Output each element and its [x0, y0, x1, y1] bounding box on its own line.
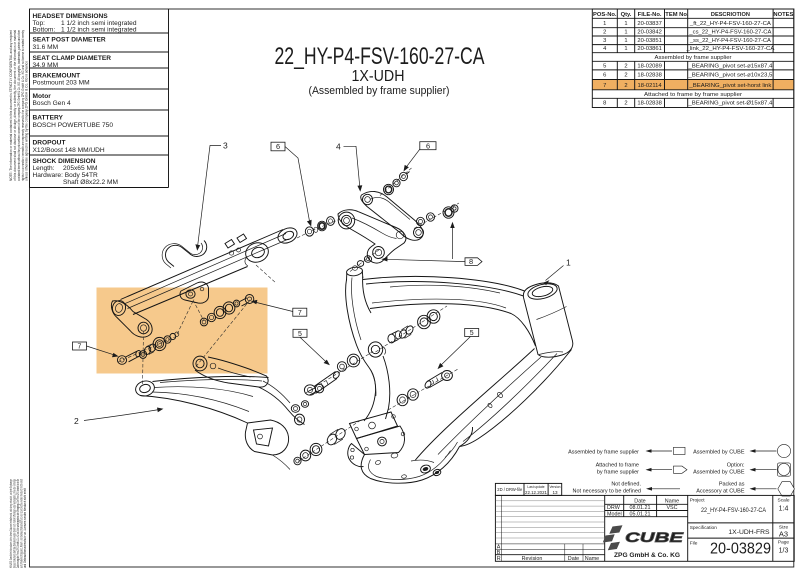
svg-text:Date: Date [568, 556, 579, 562]
svg-text:20-03837: 20-03837 [637, 21, 662, 27]
svg-text:Assembled by frame supplier: Assembled by frame supplier [568, 449, 639, 455]
svg-text:1/3: 1/3 [779, 548, 789, 555]
svg-text:1: 1 [566, 258, 571, 268]
svg-text:BRAKEMOUNT: BRAKEMOUNT [33, 73, 81, 80]
svg-text:4: 4 [336, 142, 341, 152]
svg-text:Name: Name [665, 498, 679, 504]
svg-text:1: 1 [624, 38, 627, 44]
svg-text:20-03851: 20-03851 [637, 38, 662, 44]
svg-text:1X-UDH-FRS: 1X-UDH-FRS [728, 529, 770, 536]
svg-text:6: 6 [603, 73, 606, 79]
svg-text:6: 6 [426, 141, 430, 150]
svg-text:R: R [497, 556, 501, 562]
svg-text:2D / DRW-file: 2D / DRW-file [497, 487, 523, 492]
svg-text:_link_22_HY-P4-FSV-160-27-CA: _link_22_HY-P4-FSV-160-27-CA [685, 46, 774, 52]
svg-text:05.01.21: 05.01.21 [630, 512, 651, 518]
svg-text:5: 5 [298, 331, 302, 338]
svg-text:Shaft Ø8x22.2 MM: Shaft Ø8x22.2 MM [63, 179, 118, 186]
svg-text:by frame supplier: by frame supplier [597, 469, 639, 475]
svg-text:_ft_22_HY-P4-FSV-160-27-CA: _ft_22_HY-P4-FSV-160-27-CA [689, 21, 771, 27]
svg-text:BOSCH POWERTUBE 750: BOSCH POWERTUBE 750 [33, 122, 114, 129]
svg-text:1: 1 [603, 21, 606, 27]
svg-text:HEADSET DIMENSIONS: HEADSET DIMENSIONS [33, 13, 109, 20]
svg-text:Assembled by frame supplier: Assembled by frame supplier [655, 55, 732, 61]
svg-text:8: 8 [469, 257, 473, 266]
svg-text:Bosch Gen 4: Bosch Gen 4 [33, 100, 71, 107]
svg-text:3: 3 [223, 141, 228, 151]
svg-text:20-03842: 20-03842 [637, 30, 662, 36]
svg-text:5: 5 [470, 330, 474, 337]
svg-text:7: 7 [298, 310, 302, 317]
svg-text:_cs_22_HY-P4-FSV-160-27-CA: _cs_22_HY-P4-FSV-160-27-CA [688, 30, 771, 36]
svg-text:Option:: Option: [727, 462, 745, 468]
svg-text:Attached to frame: Attached to frame [596, 462, 639, 468]
svg-text:SEAT CLAMP DIAMETER: SEAT CLAMP DIAMETER [33, 55, 112, 62]
svg-text:_BEARING_pivot set-horst link: _BEARING_pivot set-horst link [688, 83, 771, 89]
svg-text:1:4: 1:4 [779, 506, 789, 513]
svg-text:2: 2 [624, 73, 627, 79]
svg-text:_BEARING_pivot set-ø10x23,5: _BEARING_pivot set-ø10x23,5 [687, 73, 772, 79]
svg-text:31.6 MM: 31.6 MM [33, 44, 59, 51]
svg-text:1: 1 [624, 21, 627, 27]
svg-text:3: 3 [603, 38, 606, 44]
svg-text:und Gebrauchsmusterschutz vor.: und Gebrauchsmusterschutz vor. Lizenzen … [23, 488, 27, 568]
svg-text:Not defined.: Not defined. [611, 481, 641, 487]
svg-text:22.12.2021: 22.12.2021 [525, 490, 547, 495]
svg-text:ITEM No.: ITEM No. [664, 12, 689, 18]
svg-text:18-02838: 18-02838 [637, 101, 662, 107]
svg-text:18-02089: 18-02089 [637, 64, 662, 70]
svg-text:A3: A3 [779, 530, 788, 539]
svg-text:unless otherwise agreed in wri: unless otherwise agreed in writing by th… [25, 61, 29, 181]
svg-text:20-03861: 20-03861 [637, 46, 662, 52]
svg-text:_ss_22_HY-P4-FSV-160-27-CA: _ss_22_HY-P4-FSV-160-27-CA [689, 38, 771, 44]
svg-text:_BEARING_pivot set-ø15x87.4: _BEARING_pivot set-ø15x87.4 [687, 64, 773, 70]
svg-text:1: 1 [624, 30, 627, 36]
svg-text:Attached to frame by frame sup: Attached to frame by frame supplier [644, 92, 742, 98]
svg-text:Hardware: Body 54TR: Hardware: Body 54TR [33, 172, 98, 179]
svg-text:1: 1 [624, 46, 627, 52]
svg-text:BATTERY: BATTERY [33, 115, 64, 122]
svg-text:Version: Version [550, 485, 561, 489]
svg-text:1X-UDH: 1X-UDH [352, 68, 405, 85]
svg-text:18-02114: 18-02114 [638, 83, 663, 89]
svg-text:2: 2 [624, 83, 627, 89]
svg-text:6: 6 [276, 142, 280, 151]
svg-text:08.01.21: 08.01.21 [630, 505, 651, 511]
svg-text:18-02838: 18-02838 [637, 73, 662, 79]
svg-text:2: 2 [74, 416, 79, 426]
svg-text:SEAT POST DIAMETER: SEAT POST DIAMETER [33, 37, 106, 44]
svg-text:Specification: Specification [690, 525, 718, 531]
svg-text:DROPOUT: DROPOUT [33, 140, 66, 147]
svg-text:Packed as: Packed as [719, 481, 745, 487]
svg-text:5: 5 [603, 64, 606, 70]
svg-text:22_HY-P4-FSV-160-27-CA: 22_HY-P4-FSV-160-27-CA [275, 43, 485, 70]
svg-text:Assembled by CUBE: Assembled by CUBE [693, 469, 745, 475]
svg-text:2: 2 [624, 101, 627, 107]
svg-text:Bottom:: Bottom: [33, 27, 56, 34]
svg-text:1 1/2 inch semi integrated: 1 1/2 inch semi integrated [61, 27, 137, 34]
svg-text:13: 13 [552, 490, 558, 495]
svg-text:Revision: Revision [522, 556, 543, 562]
svg-text:DESCRIOTION: DESCRIOTION [711, 12, 750, 18]
svg-text:2: 2 [624, 64, 627, 70]
svg-text:Name: Name [585, 556, 599, 562]
svg-text:FILE-No.: FILE-No. [638, 12, 662, 18]
svg-text:Project: Project [690, 498, 706, 504]
svg-text:Page: Page [778, 540, 790, 546]
svg-text:7: 7 [603, 83, 606, 89]
svg-text:Not necessary to be defined: Not necessary to be defined [573, 488, 642, 494]
svg-text:2: 2 [603, 30, 606, 36]
svg-text:(Assembled by frame supplier): (Assembled by frame supplier) [309, 85, 450, 97]
svg-text:34.9 MM: 34.9 MM [33, 62, 59, 69]
svg-text:20-03829: 20-03829 [710, 541, 771, 558]
svg-text:ZPG GmbH & Co. KG: ZPG GmbH & Co. KG [614, 552, 680, 559]
svg-text:205x65 MM: 205x65 MM [63, 165, 97, 172]
svg-text:Postmount 203 MM: Postmount 203 MM [33, 80, 90, 87]
svg-text:Model: Model [607, 512, 622, 518]
svg-text:Length:: Length: [33, 165, 55, 172]
svg-text:22_HY-P4-FSV-160-27-CA: 22_HY-P4-FSV-160-27-CA [701, 507, 767, 514]
svg-text:Motor: Motor [33, 93, 52, 100]
svg-text:Qty.: Qty. [621, 12, 632, 18]
svg-text:Assembled by CUBE: Assembled by CUBE [693, 449, 745, 455]
svg-text:Date: Date [634, 498, 645, 504]
svg-text:SHOCK DIMENSION: SHOCK DIMENSION [33, 158, 96, 165]
svg-text:7: 7 [78, 344, 82, 351]
svg-text:X12/Boost 148 MM/UDH: X12/Boost 148 MM/UDH [33, 147, 105, 154]
svg-text:CUBE: CUBE [625, 529, 684, 545]
svg-text:8: 8 [603, 101, 606, 107]
svg-text:Accessory at CUBE: Accessory at CUBE [696, 488, 745, 494]
svg-text:VSC: VSC [666, 505, 677, 511]
svg-text:NOTES: NOTES [773, 12, 793, 18]
svg-text:Scale: Scale [778, 498, 790, 504]
svg-text:File: File [690, 540, 698, 546]
svg-text:Last update: Last update [527, 485, 544, 489]
svg-text:DRW: DRW [607, 505, 621, 511]
svg-text:POS-No.: POS-No. [593, 12, 617, 18]
svg-text:_BEARING_pivot set-Ø15x87.4: _BEARING_pivot set-Ø15x87.4 [687, 101, 773, 107]
